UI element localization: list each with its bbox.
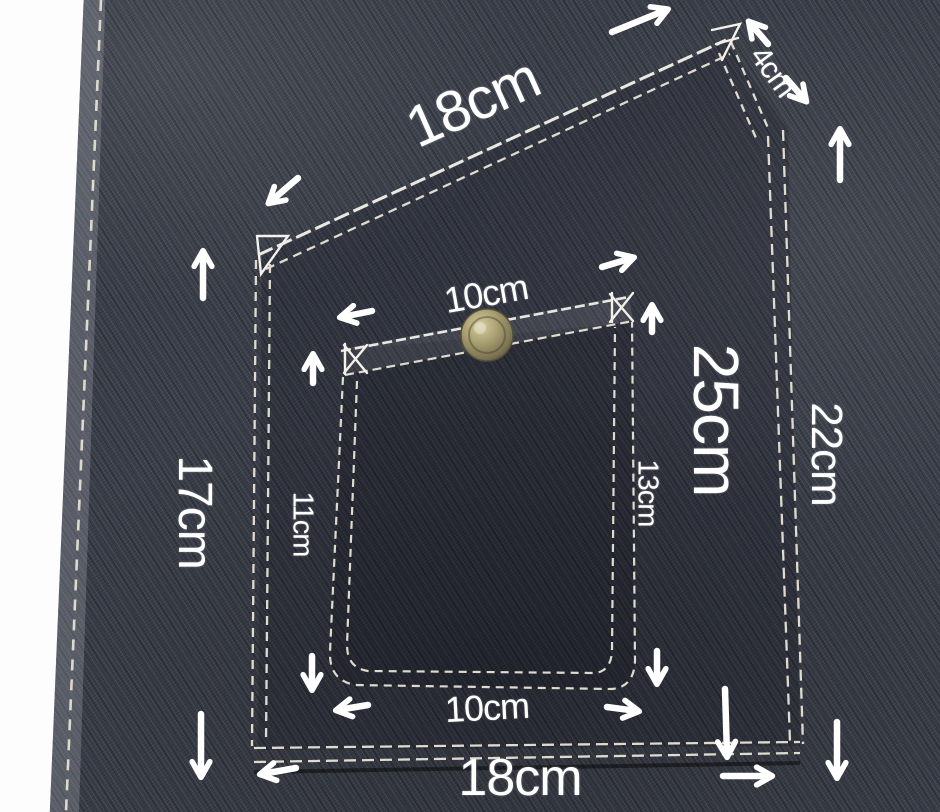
measurement-label-inner-right-height: 13cm bbox=[633, 460, 662, 527]
arrow-right-icon bbox=[607, 707, 637, 711]
denim-photo: 18cm 4cm 10cm 25cm 22cm 13cm 17cm 11cm 1… bbox=[0, 0, 940, 812]
measurement-label-right-height: 22cm bbox=[804, 402, 848, 506]
arrow-down-icon bbox=[725, 689, 727, 755]
measurement-label-bottom-width: 18cm bbox=[458, 752, 581, 804]
measurement-label-pocket-height: 25cm bbox=[684, 344, 748, 497]
arrow-up-left-icon bbox=[750, 23, 768, 44]
measurement-label-left-height: 17cm bbox=[170, 455, 218, 568]
arrow-down-left-icon bbox=[270, 178, 298, 202]
measurement-label-inner-bottom-width: 10cm bbox=[444, 688, 530, 728]
measurement-label-inner-left-height: 11cm bbox=[288, 492, 317, 557]
hem-stitch-line bbox=[66, 0, 101, 812]
arrow-up-right-icon bbox=[612, 10, 666, 32]
